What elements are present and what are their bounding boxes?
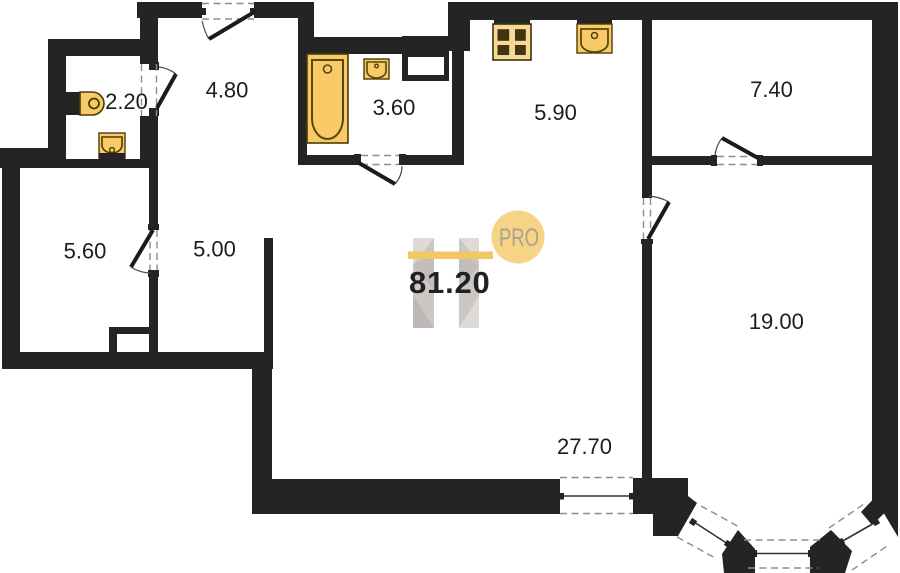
svg-text:7.40: 7.40: [750, 77, 793, 102]
svg-text:81.20: 81.20: [409, 265, 491, 300]
svg-text:4.80: 4.80: [206, 78, 249, 103]
svg-text:27.70: 27.70: [557, 434, 612, 459]
svg-text:5.00: 5.00: [193, 237, 236, 262]
svg-text:PRO: PRO: [499, 224, 539, 252]
svg-text:5.90: 5.90: [534, 100, 577, 125]
svg-text:5.60: 5.60: [64, 239, 107, 264]
svg-text:2.20: 2.20: [105, 89, 148, 114]
svg-text:19.00: 19.00: [749, 309, 804, 334]
svg-text:3.60: 3.60: [373, 95, 416, 120]
